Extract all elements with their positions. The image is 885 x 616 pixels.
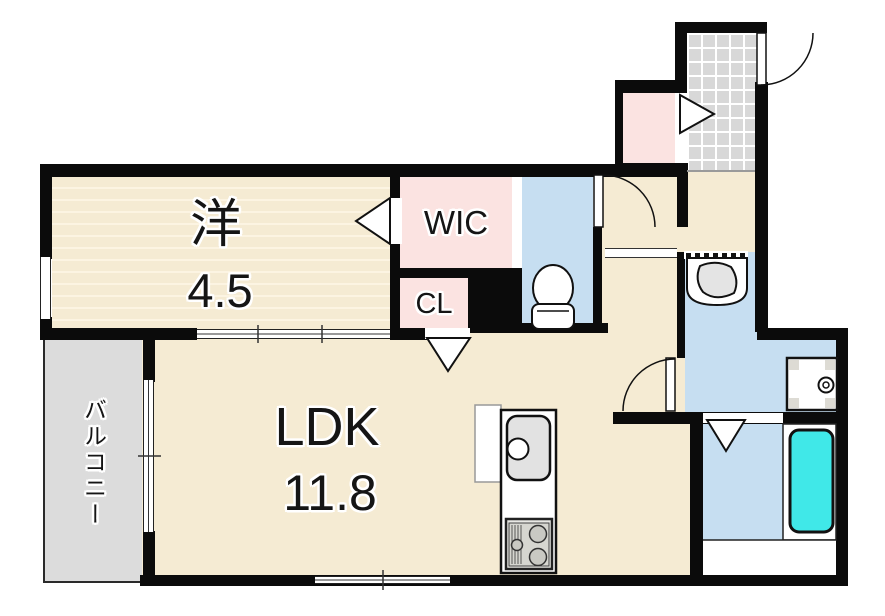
wall <box>390 328 427 340</box>
room-toilet <box>522 175 593 323</box>
wall <box>140 575 848 586</box>
room-label-cl: CL <box>398 286 470 322</box>
wall <box>40 164 617 177</box>
wall <box>143 531 155 577</box>
room-label-western: 洋 <box>146 196 286 254</box>
floor-plan-canvas: 洋 4.5 WIC CL LDK 11.8 バルコニー <box>0 0 885 616</box>
window-western-left <box>40 257 51 319</box>
entry-door-leaf <box>757 33 766 85</box>
entry-door-arc <box>761 33 813 85</box>
balcony-window <box>143 380 154 532</box>
wall <box>677 252 685 358</box>
wall <box>40 164 52 259</box>
wall <box>675 22 767 33</box>
bathroom-door-gap <box>703 413 783 423</box>
shoe-closet <box>622 93 675 163</box>
bathroom-ledge <box>703 540 836 575</box>
wall <box>755 82 768 332</box>
wall <box>757 328 847 340</box>
wall <box>40 328 197 340</box>
cl-opening <box>425 328 470 339</box>
washroom-lower <box>685 332 837 412</box>
wall <box>613 412 690 424</box>
wall <box>836 328 848 586</box>
washroom-upper <box>685 252 757 332</box>
shoe-closet-door-strip <box>676 93 687 163</box>
wall <box>677 163 688 227</box>
window-ldk-bottom <box>315 576 450 584</box>
entrance-tile-floor <box>687 33 757 172</box>
bathroom-floor <box>703 424 837 542</box>
sliding-door-western-ldk <box>197 329 390 339</box>
room-label-balcony: バルコニー <box>78 383 108 543</box>
wall <box>143 338 155 382</box>
room-area-western: 4.5 <box>146 262 294 318</box>
room-label-ldk: LDK <box>227 400 427 454</box>
room-area-ldk: 11.8 <box>230 466 430 520</box>
wall <box>690 412 703 585</box>
hallway-opening <box>605 248 677 258</box>
room-label-wic: WIC <box>396 202 516 242</box>
wall <box>593 227 602 333</box>
